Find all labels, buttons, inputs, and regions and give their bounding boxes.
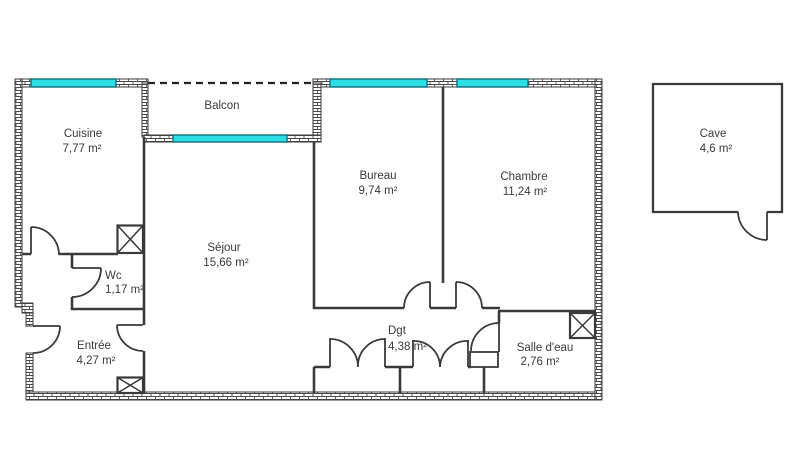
wall-bottom xyxy=(26,392,602,400)
label-chambre-name: Chambre xyxy=(500,171,547,183)
balcony-pier-right xyxy=(313,83,321,137)
label-cuisine-area: 7,77 m² xyxy=(63,143,102,155)
door-entree-hall xyxy=(117,325,143,351)
door-wc xyxy=(72,268,101,297)
window-sejour xyxy=(173,135,287,142)
label-entree-name: Entrée xyxy=(77,340,111,352)
wall-right xyxy=(595,79,602,400)
label-chambre-area: 11,24 m² xyxy=(503,186,548,198)
label-bureau-area: 9,74 m² xyxy=(359,185,398,197)
label-sejour-name: Séjour xyxy=(207,242,240,254)
cave-outline xyxy=(653,84,782,240)
wall-left-mid xyxy=(26,313,33,326)
label-bureau-name: Bureau xyxy=(359,170,396,182)
door-chambre xyxy=(456,282,482,308)
label-cuisine-name: Cuisine xyxy=(64,128,102,140)
balcony-pier-left xyxy=(142,83,148,137)
label-balcon-name: Balcon xyxy=(204,100,239,112)
shaft-icon-entree xyxy=(118,378,144,394)
wall-wc xyxy=(71,254,145,310)
label-dgt-area: 4,38 m² xyxy=(388,341,427,353)
label-wc-area: 1,17 m² xyxy=(105,284,144,296)
door-bathroom xyxy=(471,323,499,352)
label-cave-name: Cave xyxy=(700,128,727,140)
shaft-icon-kitchen xyxy=(118,226,144,254)
label-sejour-area: 15,66 m² xyxy=(203,257,249,269)
label-dgt-name: Dgt xyxy=(388,325,407,337)
wall-left-step xyxy=(22,303,33,313)
wall-closets xyxy=(314,367,484,393)
floor-plan-page: Cuisine 7,77 m² Balcon Séjour 15,66 m² B… xyxy=(0,0,800,458)
bathroom-fixture xyxy=(470,352,498,367)
door-closet-1 xyxy=(330,338,385,367)
door-bureau xyxy=(404,282,430,308)
door-cuisine xyxy=(31,227,59,255)
label-wc-name: Wc xyxy=(105,270,122,282)
label-cave-area: 4,6 m² xyxy=(700,143,733,155)
door-entrance-front xyxy=(33,326,60,353)
label-salledeau-name: Salle d'eau xyxy=(517,342,574,354)
window-bureau xyxy=(330,79,427,87)
door-cave xyxy=(738,212,767,240)
floor-plan-drawing: Cuisine 7,77 m² Balcon Séjour 15,66 m² B… xyxy=(0,0,800,458)
label-salledeau-area: 2,76 m² xyxy=(521,356,560,368)
windows xyxy=(31,79,528,142)
shaft-icon-bathroom xyxy=(570,313,595,338)
wall-left-upper xyxy=(15,79,22,307)
label-entree-area: 4,27 m² xyxy=(77,355,116,367)
window-chambre xyxy=(457,79,528,87)
window-cuisine xyxy=(31,79,116,87)
